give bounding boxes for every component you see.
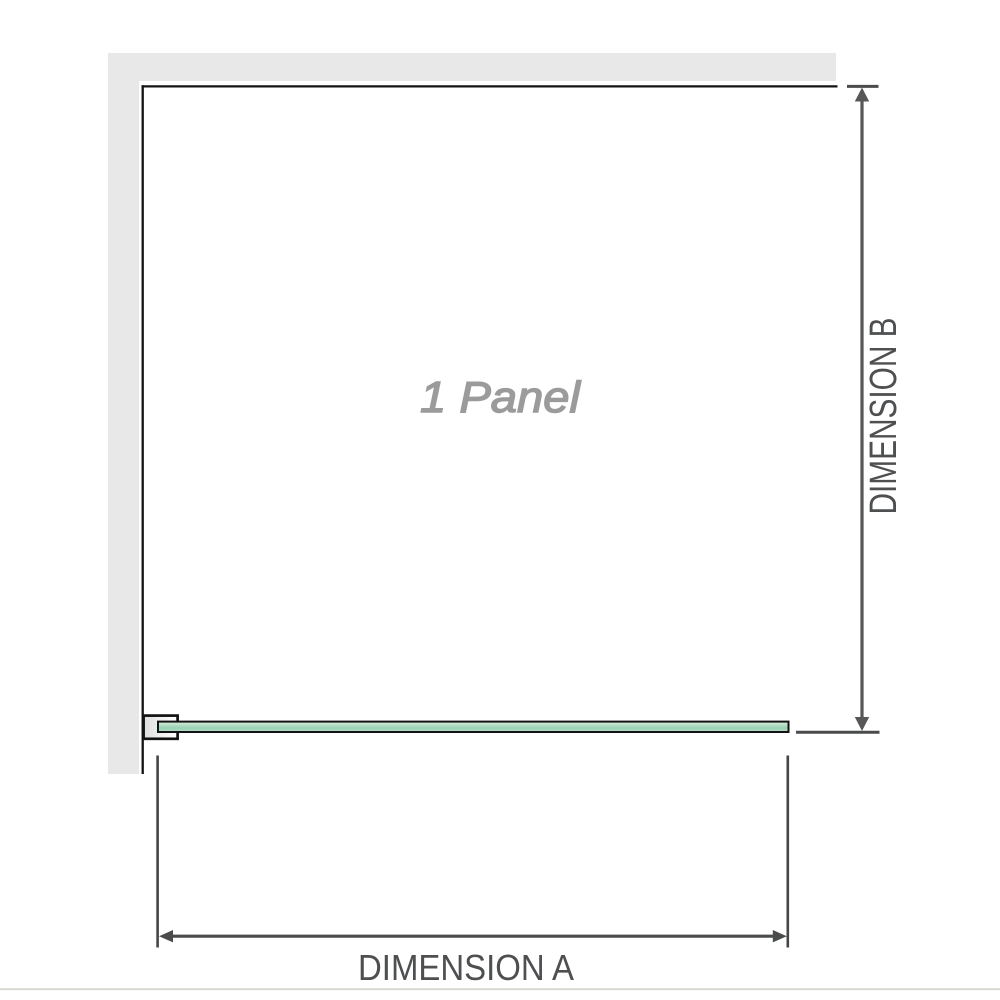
svg-text:DIMENSION A: DIMENSION A [358, 947, 574, 988]
svg-text:1 Panel: 1 Panel [420, 373, 581, 422]
svg-text:DIMENSION B: DIMENSION B [863, 318, 905, 515]
